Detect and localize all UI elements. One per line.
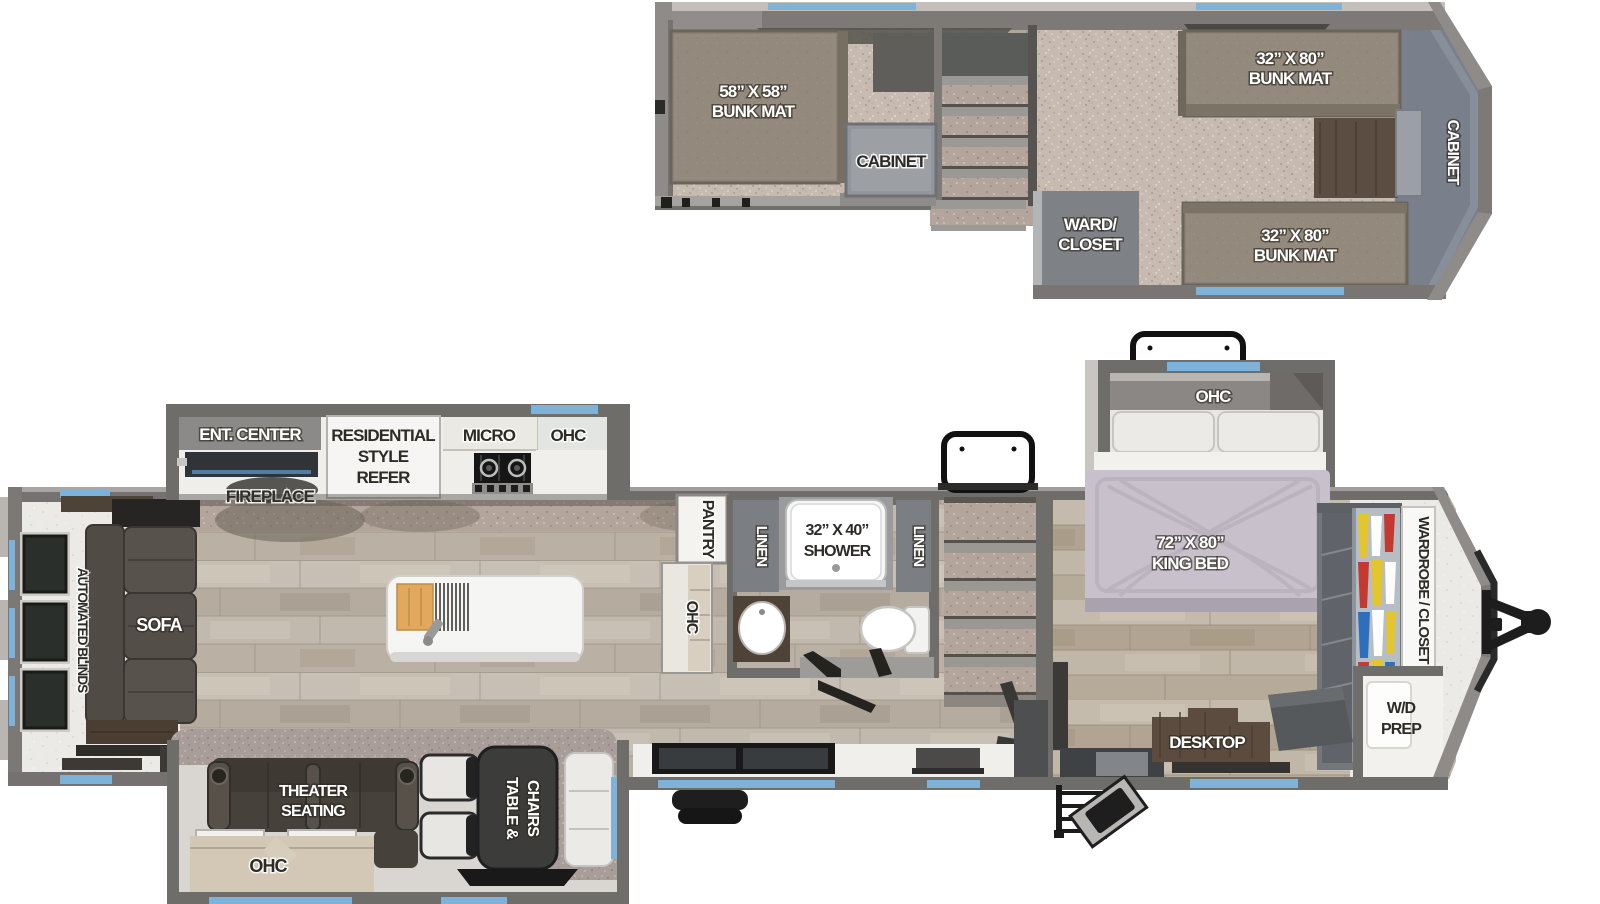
svg-text:WARDROBE / CLOSET: WARDROBE / CLOSET xyxy=(1415,516,1432,664)
svg-text:BUNK MAT: BUNK MAT xyxy=(1249,69,1333,88)
svg-text:58” X 58”: 58” X 58” xyxy=(719,82,787,101)
svg-text:SOFA: SOFA xyxy=(136,615,182,635)
svg-text:CHAIRS: CHAIRS xyxy=(524,780,541,837)
svg-text:LINEN: LINEN xyxy=(753,526,770,567)
svg-text:KING BED: KING BED xyxy=(1152,554,1229,573)
svg-text:72” X 80”: 72” X 80” xyxy=(1156,533,1224,552)
svg-text:AUTOMATED BLINDS: AUTOMATED BLINDS xyxy=(75,568,90,693)
svg-text:MICRO: MICRO xyxy=(463,426,516,445)
svg-text:LINEN: LINEN xyxy=(910,526,927,567)
svg-text:SHOWER: SHOWER xyxy=(804,543,872,560)
svg-text:32” X 80”: 32” X 80” xyxy=(1256,49,1324,68)
svg-text:PREP: PREP xyxy=(1381,721,1422,738)
svg-text:THEATER: THEATER xyxy=(279,783,348,800)
svg-text:CLOSET: CLOSET xyxy=(1058,235,1123,254)
svg-text:OHC: OHC xyxy=(550,426,586,445)
svg-text:RESIDENTIAL: RESIDENTIAL xyxy=(331,426,435,445)
svg-text:TABLE &: TABLE & xyxy=(503,777,520,840)
svg-text:OHC: OHC xyxy=(249,856,287,876)
svg-text:OHC: OHC xyxy=(683,601,700,635)
svg-text:32” X 80”: 32” X 80” xyxy=(1261,226,1329,245)
svg-text:ENT. CENTER: ENT. CENTER xyxy=(199,425,301,444)
svg-text:SEATING: SEATING xyxy=(281,803,345,820)
svg-text:BUNK MAT: BUNK MAT xyxy=(712,102,796,121)
svg-text:PANTRY: PANTRY xyxy=(699,500,716,560)
svg-text:BUNK MAT: BUNK MAT xyxy=(1254,246,1338,265)
svg-text:WARD/: WARD/ xyxy=(1064,215,1117,234)
svg-text:W/D: W/D xyxy=(1387,700,1416,717)
svg-text:DESKTOP: DESKTOP xyxy=(1169,733,1245,752)
svg-text:REFER: REFER xyxy=(356,468,410,487)
svg-text:CABINET: CABINET xyxy=(856,152,927,171)
svg-text:32” X 40”: 32” X 40” xyxy=(805,522,868,539)
svg-text:STYLE: STYLE xyxy=(358,447,409,466)
svg-text:OHC: OHC xyxy=(1195,387,1231,406)
svg-text:CABINET: CABINET xyxy=(1444,120,1461,186)
